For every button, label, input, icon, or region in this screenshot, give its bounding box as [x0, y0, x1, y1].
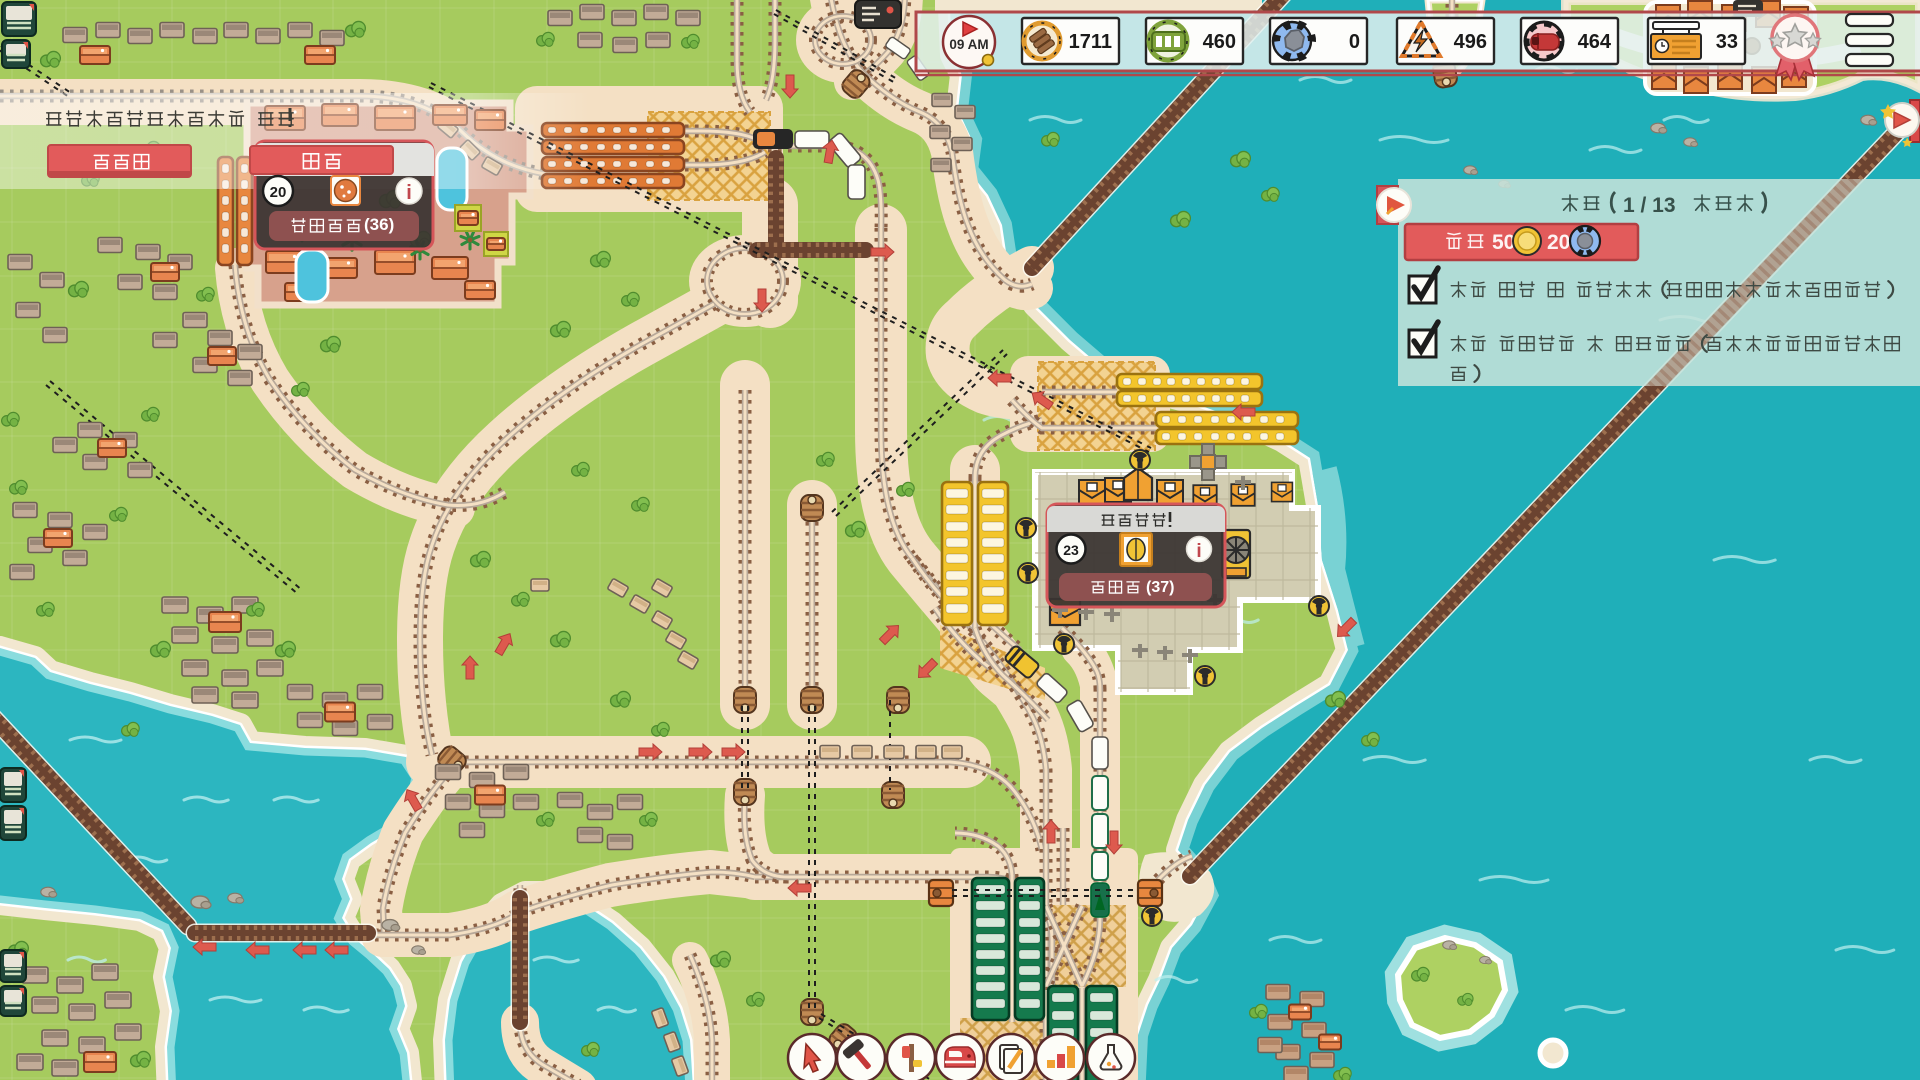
svg-text:1711: 1711 — [1069, 31, 1112, 53]
svg-text:50: 50 — [1492, 231, 1515, 254]
svg-text:i: i — [406, 182, 412, 204]
svg-text:(36): (36) — [364, 215, 394, 234]
svg-text:09 AM: 09 AM — [949, 37, 988, 52]
svg-text:33: 33 — [1716, 31, 1738, 53]
svg-text:20: 20 — [1547, 231, 1570, 254]
svg-text:0: 0 — [1349, 31, 1360, 53]
svg-text:(37): (37) — [1146, 579, 1174, 596]
svg-text:496: 496 — [1454, 31, 1487, 53]
svg-text:20: 20 — [270, 184, 287, 201]
svg-text:i: i — [1196, 541, 1201, 562]
svg-text:460: 460 — [1203, 31, 1236, 53]
svg-text:464: 464 — [1578, 31, 1612, 53]
svg-text:1 / 13: 1 / 13 — [1623, 194, 1676, 217]
svg-text:23: 23 — [1063, 542, 1079, 558]
